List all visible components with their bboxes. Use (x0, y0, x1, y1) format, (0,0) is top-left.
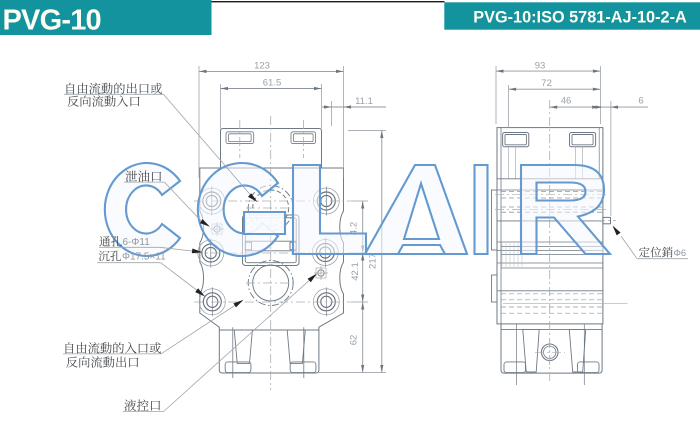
svg-text:42.1: 42.1 (350, 262, 361, 281)
svg-text:217: 217 (368, 253, 379, 269)
svg-text:6-Φ11: 6-Φ11 (123, 237, 151, 248)
svg-text:72: 72 (541, 78, 552, 89)
svg-text:PVG-10: PVG-10 (3, 4, 101, 36)
svg-text:Φ6: Φ6 (674, 248, 687, 258)
svg-text:93: 93 (535, 60, 546, 71)
svg-text:62: 62 (349, 335, 360, 346)
svg-text:6: 6 (638, 96, 643, 107)
svg-text:123: 123 (254, 60, 270, 71)
svg-text:61.5: 61.5 (263, 78, 282, 89)
svg-text:PVG-10:ISO 5781-AJ-10-2-A: PVG-10:ISO 5781-AJ-10-2-A (473, 8, 687, 26)
svg-text:11.1: 11.1 (355, 96, 373, 107)
svg-text:46: 46 (561, 96, 572, 107)
svg-text:Φ17.5×11: Φ17.5×11 (122, 252, 166, 263)
